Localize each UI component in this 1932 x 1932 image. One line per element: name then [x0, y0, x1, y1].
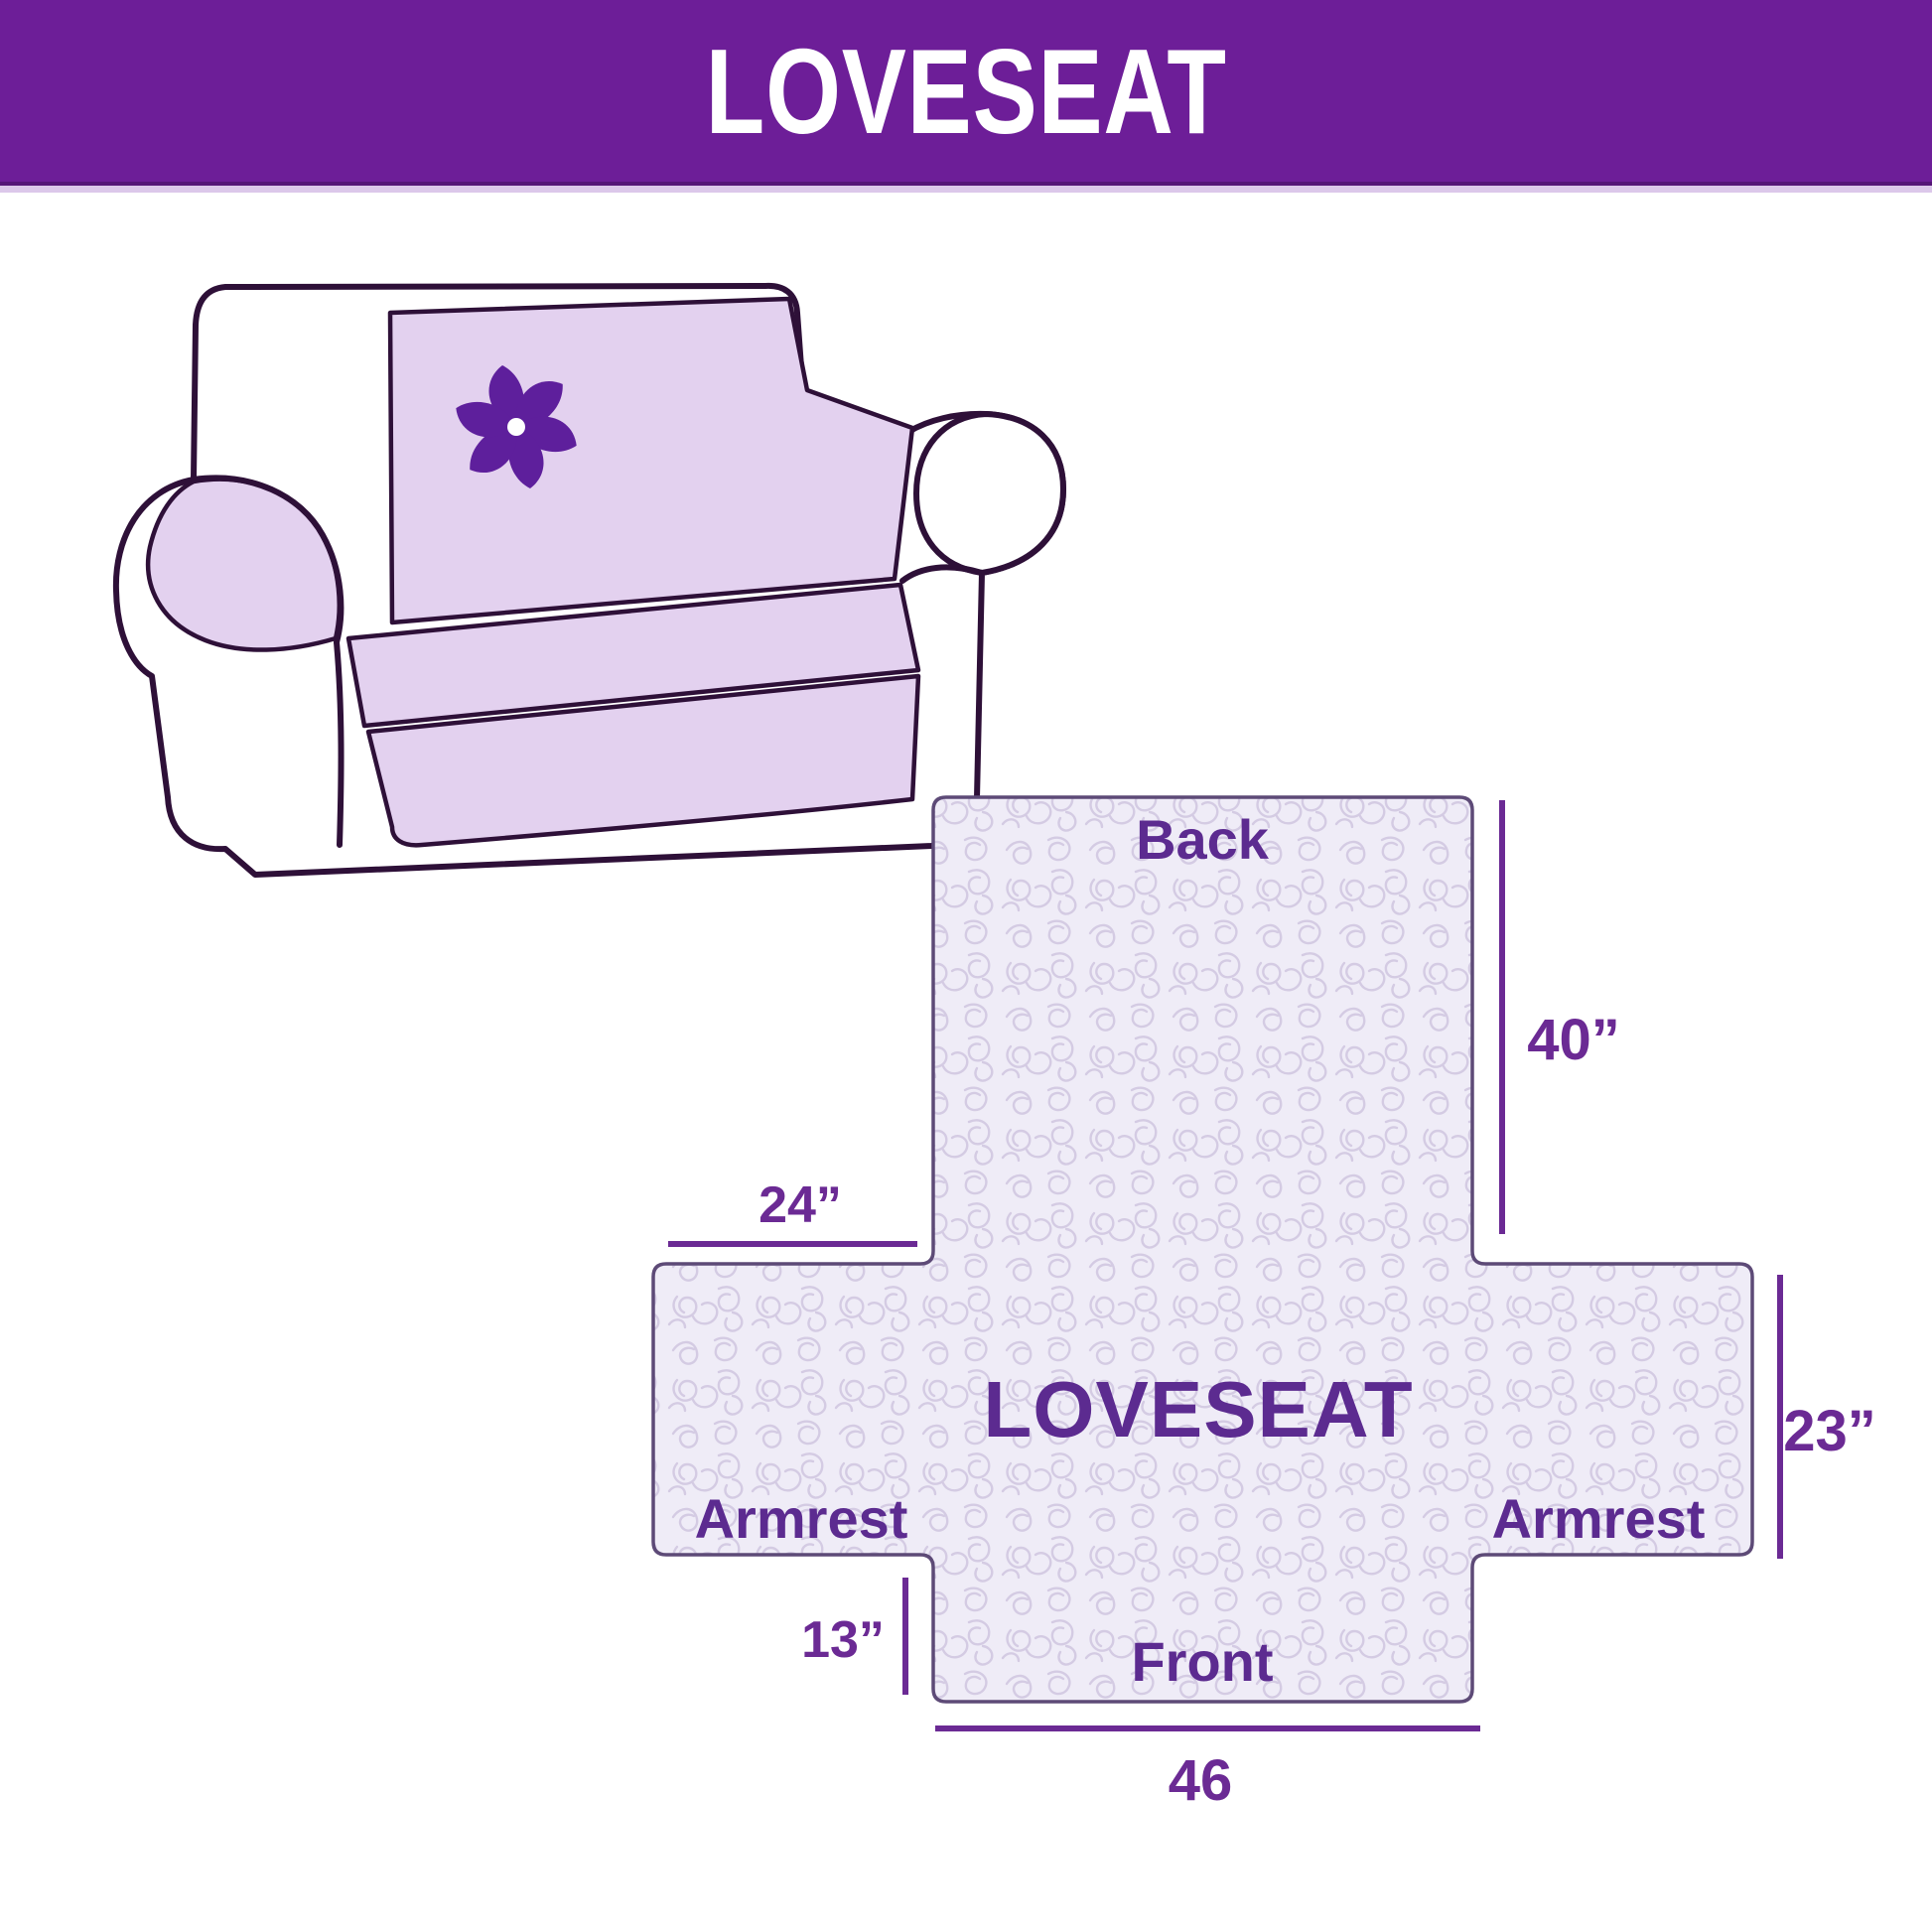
dimension-23-label: 23” — [1783, 1403, 1876, 1460]
dimension-24-label: 24” — [759, 1179, 842, 1231]
center-product-label: LOVESEAT — [983, 1370, 1413, 1449]
armrest-left-label: Armrest — [695, 1491, 908, 1547]
cover-diagram — [0, 0, 1932, 1932]
back-panel-label: Back — [1136, 812, 1269, 868]
dimension-40-label: 40” — [1527, 1012, 1620, 1069]
dimension-13-label: 13” — [801, 1614, 885, 1666]
cover-cross-shape — [653, 797, 1752, 1702]
dimension-46-label: 46 — [1169, 1752, 1233, 1810]
armrest-right-label: Armrest — [1492, 1491, 1706, 1547]
front-panel-label: Front — [1131, 1634, 1273, 1690]
